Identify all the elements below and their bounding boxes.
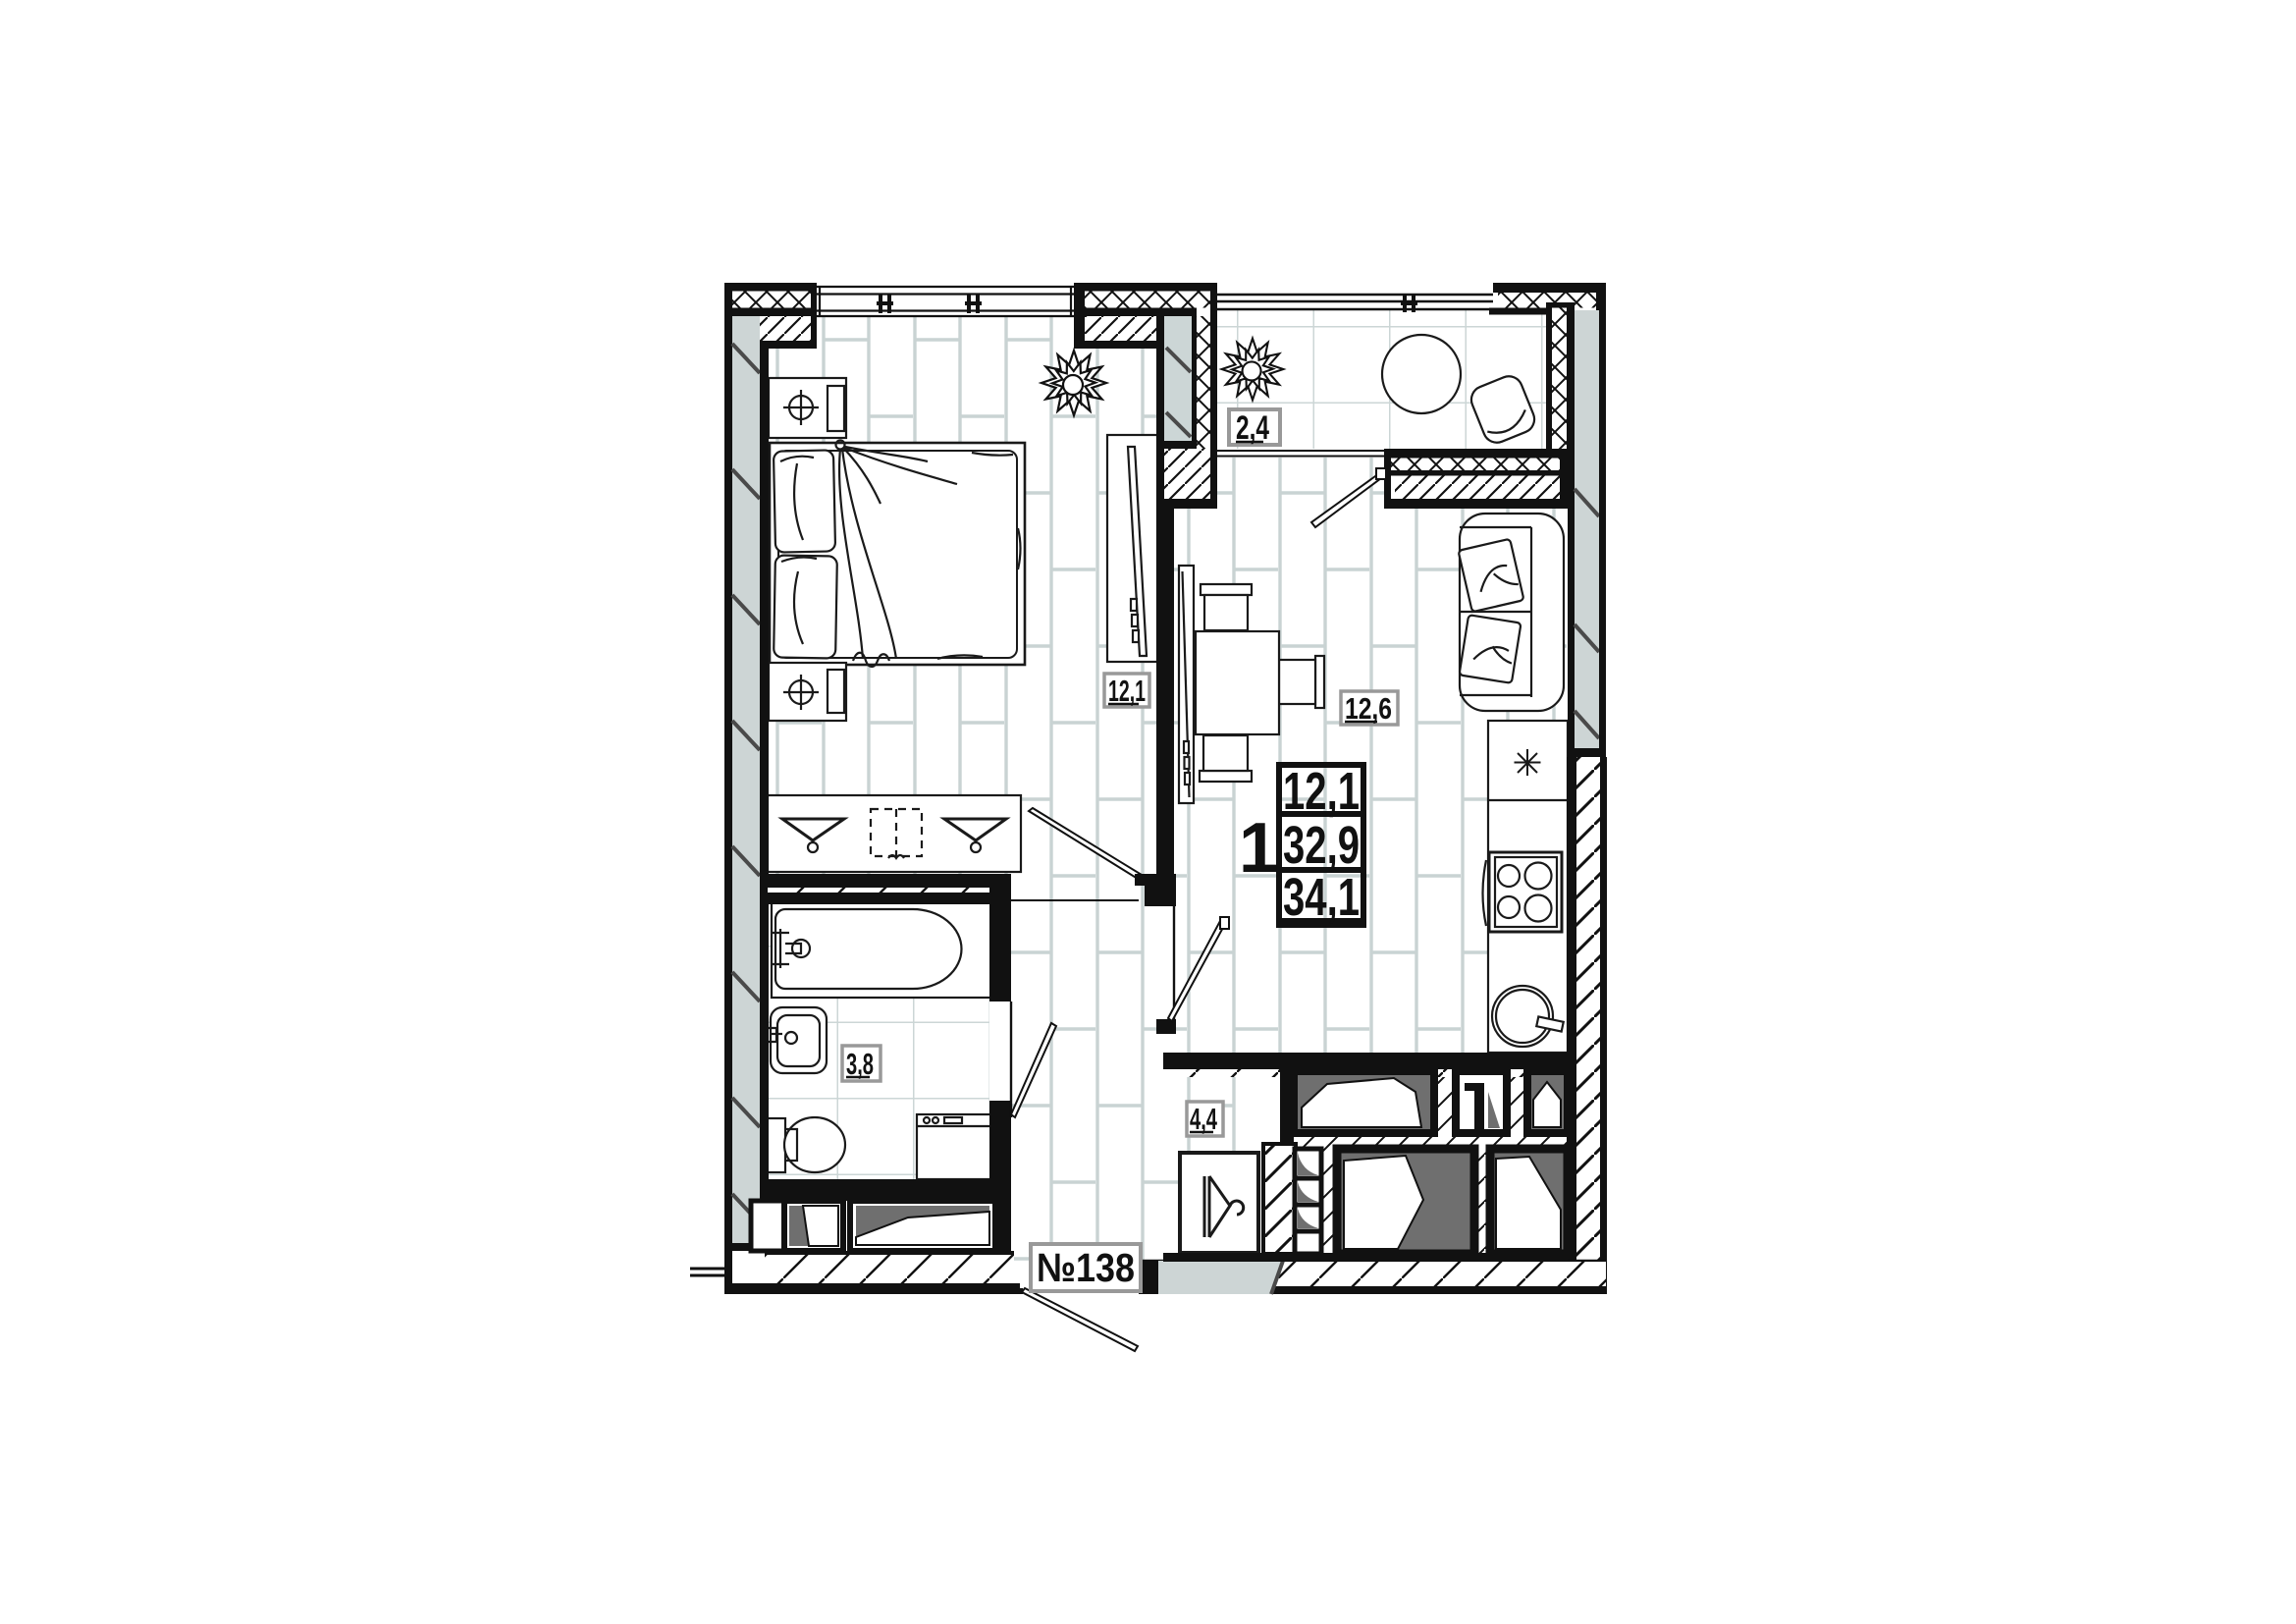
svg-text:№138: №138: [1037, 1245, 1135, 1290]
svg-text:12,1: 12,1: [1283, 762, 1360, 821]
svg-text:1: 1: [1239, 809, 1278, 888]
svg-text:32,9: 32,9: [1283, 816, 1360, 875]
svg-text:34,1: 34,1: [1283, 868, 1360, 927]
